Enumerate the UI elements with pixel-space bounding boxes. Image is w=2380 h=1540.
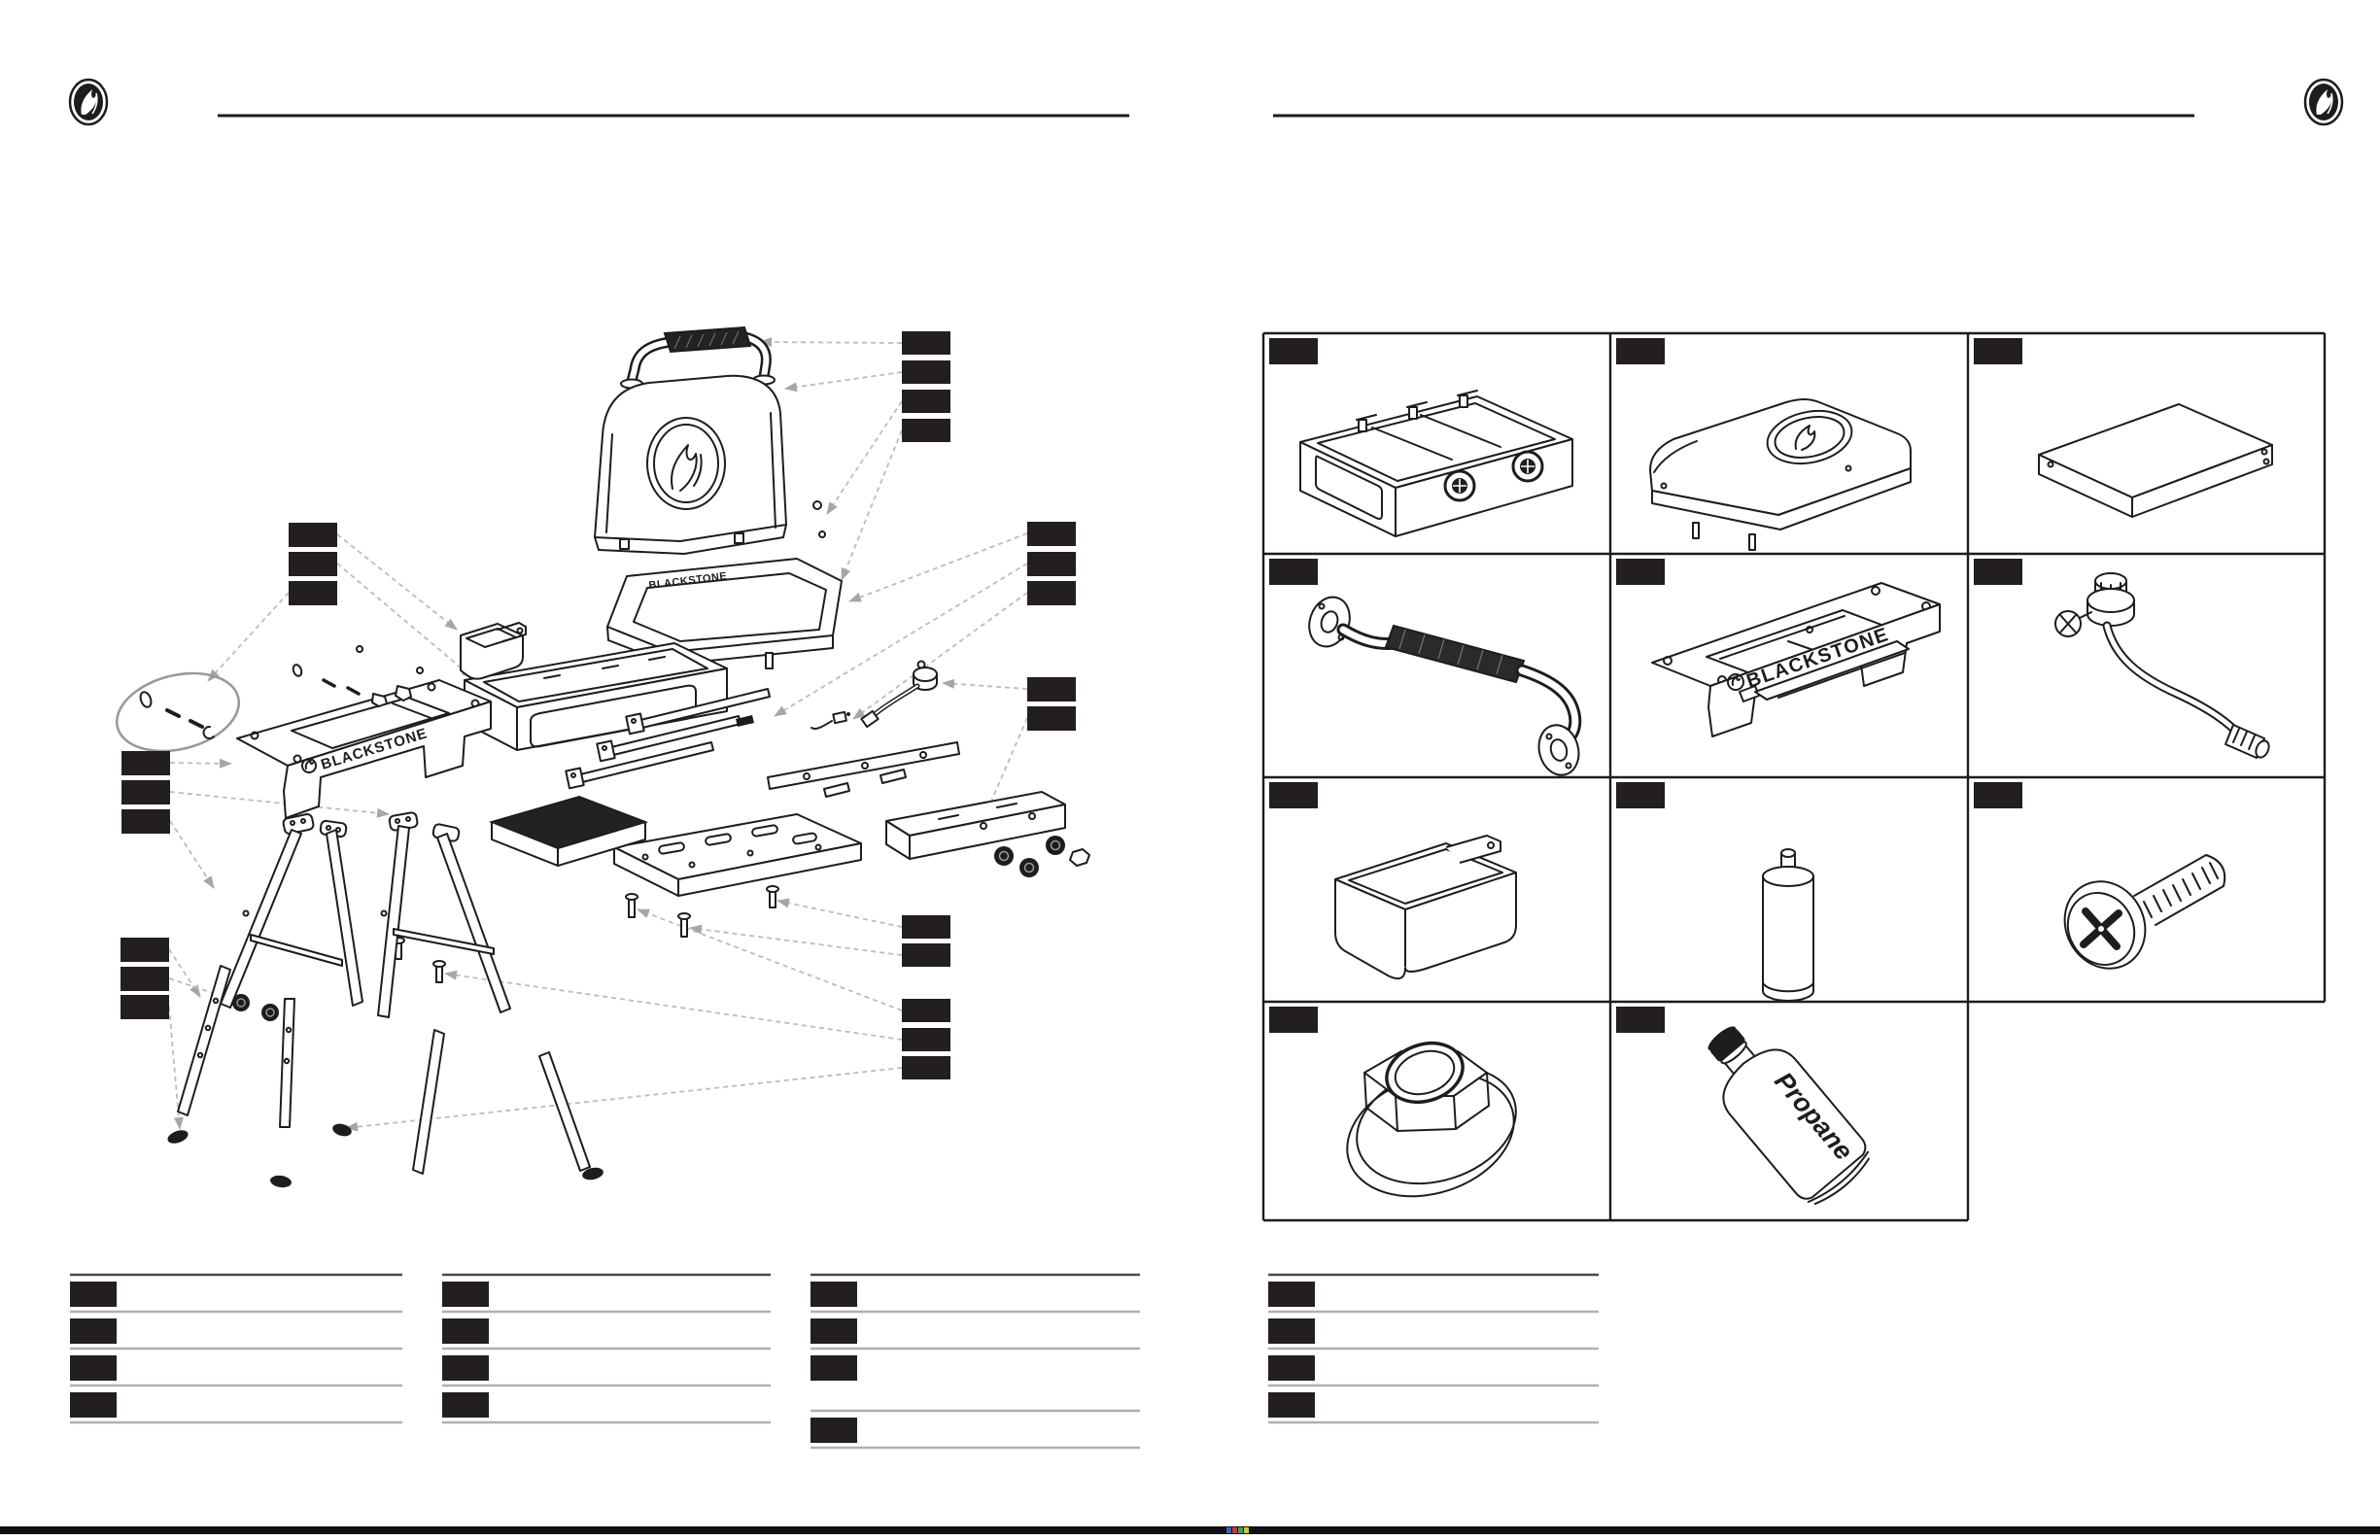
callout-box — [902, 331, 950, 355]
callout-box — [1027, 581, 1076, 605]
part-phillips-screw — [2050, 855, 2225, 982]
legend-label-box — [811, 1355, 857, 1381]
legend-label-box — [442, 1318, 489, 1344]
part-label-box — [1974, 782, 2022, 808]
legend-label-box — [70, 1355, 117, 1381]
part-label-box — [1616, 782, 1665, 808]
part-regulator-hose — [2055, 573, 2271, 760]
legend-label-box — [811, 1418, 857, 1443]
parts-grid: BLACKSTONE — [1263, 333, 2325, 1220]
part-label-box — [1974, 338, 2022, 364]
legend-label-box — [1268, 1318, 1315, 1344]
fastener-callout-oval — [109, 662, 248, 764]
regulator-part — [861, 662, 937, 728]
callout-box — [902, 999, 950, 1022]
legend-label-box — [1268, 1282, 1315, 1307]
callout-box — [902, 943, 950, 967]
left-legend-column-1 — [70, 1275, 402, 1422]
left-legend-column-2 — [442, 1275, 771, 1422]
legend-label-box — [442, 1355, 489, 1381]
igniter-part — [811, 712, 850, 729]
callout-box — [1027, 522, 1076, 546]
right-page-logo — [2305, 80, 2342, 124]
part-flange-nut — [1331, 1034, 1532, 1216]
callout-box — [902, 390, 950, 413]
legend-label-box — [70, 1318, 117, 1344]
callout-box — [289, 552, 337, 576]
loose-fasteners — [292, 646, 423, 706]
part-label-box — [1269, 338, 1318, 364]
left-page-logo — [70, 80, 107, 124]
legend-label-box — [70, 1282, 117, 1307]
part-carry-handle — [1302, 592, 1584, 780]
callout-box — [902, 360, 950, 384]
callout-box — [902, 419, 950, 442]
part-base-stand: BLACKSTONE — [1652, 583, 1940, 736]
leg-assemblies — [166, 812, 604, 1189]
legend-label-box — [442, 1282, 489, 1307]
control-knobs-fasteners — [994, 836, 1089, 877]
part-label-box — [1616, 338, 1665, 364]
exploded-diagram: BLACKSTONE — [109, 327, 1089, 1188]
part-hood — [1650, 399, 1911, 550]
left-legend-column-3 — [811, 1275, 1140, 1448]
footer-bar — [0, 1526, 2380, 1534]
callout-box — [121, 995, 169, 1019]
base-stand-part: BLACKSTONE — [237, 680, 491, 818]
part-propane-bottle: Propane — [1685, 1007, 1878, 1213]
callout-box — [289, 581, 337, 605]
part-grease-cup — [1335, 836, 1516, 978]
hood-part — [595, 376, 825, 554]
part-label-box — [1974, 559, 2022, 585]
callout-box — [289, 523, 337, 547]
part-support-cylinder — [1763, 849, 1813, 1001]
callout-box — [902, 915, 950, 939]
legend-label-box — [442, 1392, 489, 1418]
bottom-panel-part — [614, 814, 861, 896]
right-legend-column — [1268, 1275, 1599, 1422]
part-label-box — [1269, 782, 1318, 808]
callout-box — [1027, 677, 1076, 702]
carriage-bolts — [393, 886, 778, 982]
legend-label-box — [1268, 1355, 1315, 1381]
side-shelf-part — [886, 792, 1065, 859]
legend-label-box — [70, 1392, 117, 1418]
callout-box — [902, 1028, 950, 1051]
callout-box — [1027, 706, 1076, 731]
callout-box — [121, 751, 170, 775]
part-label-box — [1269, 559, 1318, 585]
part-griddle-plate — [2039, 404, 2272, 517]
legend-label-box — [811, 1318, 857, 1344]
part-label-box — [1616, 559, 1665, 585]
callout-box — [1027, 552, 1076, 576]
cross-bracket-part — [768, 712, 959, 797]
part-label-box — [1616, 1007, 1665, 1033]
callout-box — [121, 809, 170, 834]
callout-box — [121, 780, 170, 804]
callout-box — [121, 967, 169, 991]
part-burner-box — [1300, 391, 1572, 536]
callout-box — [121, 938, 169, 962]
legend-label-box — [811, 1282, 857, 1307]
callout-box — [902, 1056, 950, 1079]
legend-label-box — [1268, 1392, 1315, 1418]
manual-spread: BLACKSTONE — [0, 0, 2380, 1540]
part-label-box — [1269, 1007, 1318, 1033]
